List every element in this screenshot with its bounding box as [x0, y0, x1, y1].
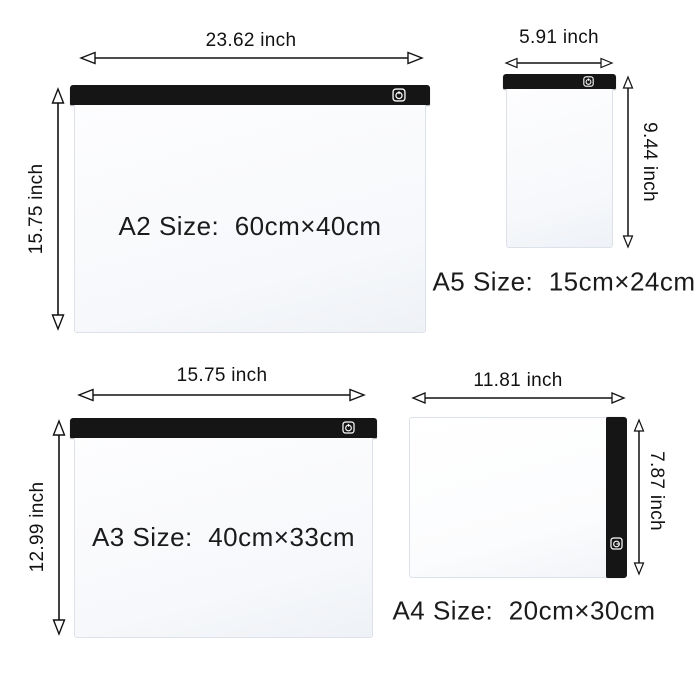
a5-led-bar — [503, 74, 616, 89]
a4-width-arrow — [412, 391, 625, 405]
a2-size-label: A2 Size: 60cm×40cm — [118, 211, 381, 242]
a3-height-arrow — [52, 420, 66, 635]
a2-pad-surface: A2 Size: 60cm×40cm — [74, 105, 426, 333]
a5-size-label: A5 Size: 15cm×24cm — [432, 267, 695, 298]
a4-led-bar — [606, 417, 627, 578]
a3-led-bar — [70, 418, 377, 438]
a3-width-label: 15.75 inch — [177, 365, 268, 387]
a4-pad-surface — [409, 417, 606, 578]
a5-width-arrow — [505, 56, 613, 70]
a3-width-arrow — [78, 388, 365, 402]
a4-width-label: 11.81 inch — [473, 370, 562, 392]
power-button-icon — [392, 88, 406, 102]
power-button-icon — [610, 537, 623, 550]
a2-height-label: 15.75 inch — [26, 164, 48, 255]
a5-width-label: 5.91 inch — [519, 27, 599, 49]
a4-light-pad — [409, 417, 627, 578]
size-diagram: 23.62 inch 15.75 inch A2 Size: 60cm×40cm… — [0, 0, 700, 700]
a2-height-arrow — [51, 88, 65, 330]
a4-size-label: A4 Size: 20cm×30cm — [392, 596, 655, 627]
a5-light-pad — [503, 74, 616, 248]
a4-height-arrow — [632, 419, 646, 575]
power-button-icon — [342, 421, 355, 434]
a3-height-label: 12.99 inch — [27, 482, 49, 573]
a2-width-arrow — [80, 51, 423, 65]
a2-led-bar — [70, 85, 430, 105]
a2-light-pad: A2 Size: 60cm×40cm — [70, 85, 430, 333]
a3-pad-surface: A3 Size: 40cm×33cm — [74, 438, 373, 638]
a5-height-arrow — [621, 76, 635, 248]
a3-size-label: A3 Size: 40cm×33cm — [92, 522, 355, 553]
a5-pad-surface — [506, 89, 613, 248]
a4-height-label: 7.87 inch — [645, 451, 667, 531]
a3-light-pad: A3 Size: 40cm×33cm — [70, 418, 377, 638]
a2-width-label: 23.62 inch — [206, 30, 297, 52]
a5-height-label: 9.44 inch — [638, 122, 660, 202]
power-button-icon — [583, 76, 594, 87]
